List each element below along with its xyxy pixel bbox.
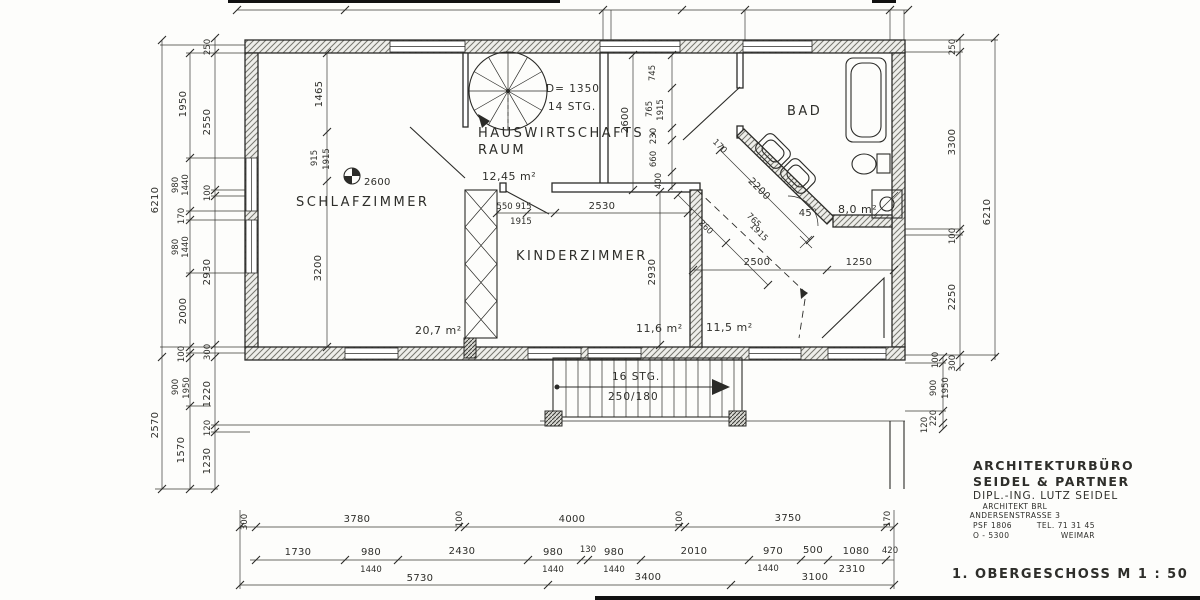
- main-staircase: [540, 358, 905, 489]
- dim-label: 1950: [941, 377, 951, 399]
- scanned-floor-plan-page: 2600 SCHLAFZIMMER 20,7 m² HAUSWIRTSCHAFT…: [0, 0, 1200, 600]
- dim-label: 100: [177, 346, 187, 362]
- stair-direction-arrow: [712, 379, 730, 395]
- dim-label: 6210: [982, 199, 993, 226]
- dim-label: 900: [929, 380, 939, 396]
- dim-label: 2430: [449, 546, 476, 557]
- dim-label: 100: [203, 185, 213, 201]
- dim-label: 300: [240, 514, 250, 530]
- area-hwr: 12,45 m²: [482, 170, 536, 183]
- spiral-steps: 14 STG.: [548, 101, 596, 113]
- dim-label: 170: [177, 208, 187, 224]
- dim-label: 120: [203, 420, 213, 436]
- corner-triangle: [822, 278, 884, 338]
- dim-label: 1440: [181, 174, 191, 196]
- dim-label: 1465: [314, 81, 325, 108]
- area-schlafzimmer: 20,7 m²: [415, 324, 462, 337]
- dim-label: 980: [171, 239, 181, 255]
- dim-label: 3100: [802, 572, 829, 583]
- schlafzimmer-door-leaf: [410, 127, 465, 178]
- dim-label: 1440: [542, 565, 564, 575]
- main-stair-steps: 16 STG.: [612, 371, 660, 383]
- area-kinderzimmer: 11,6 m²: [636, 322, 683, 335]
- level-marker: 2600: [344, 168, 391, 188]
- dim-label: 6210: [150, 187, 161, 214]
- floor-plan-drawing: 2600 SCHLAFZIMMER 20,7 m² HAUSWIRTSCHAFT…: [0, 0, 1200, 600]
- dim-label: 1220: [202, 381, 213, 408]
- dim-label: 100: [931, 352, 941, 368]
- dim-label: 4000: [559, 514, 586, 525]
- dim-label: 1730: [285, 547, 312, 558]
- dim-label: 100: [948, 228, 958, 244]
- dim-label: 2250: [947, 284, 958, 311]
- dim-chain-bottom: 300 3780 100 4000 100 3750 170 1730 980 …: [236, 510, 898, 589]
- room-label-schlafzimmer: SCHLAFZIMMER: [296, 195, 429, 210]
- dim-label: 2930: [202, 259, 213, 286]
- chimney-block: [464, 190, 497, 358]
- dim-label: 3400: [635, 572, 662, 583]
- office-street: ANDERSENSTRASSE 3: [970, 511, 1061, 520]
- dim-label: 2600: [620, 107, 631, 134]
- office-pobox: PSF 1806: [973, 521, 1012, 530]
- dim-label: 3780: [344, 514, 371, 525]
- dim-label: 765: [645, 101, 655, 117]
- dim-label: 2550: [202, 109, 213, 136]
- dim-label: 1570: [176, 437, 187, 464]
- office-city: WEIMAR: [1061, 531, 1095, 540]
- top-extension-lines: [233, 6, 912, 40]
- dim-label: 100: [455, 511, 465, 527]
- dim-label: 970: [763, 546, 783, 557]
- bathroom-fixtures: [753, 58, 902, 218]
- dim-label: 3750: [775, 513, 802, 524]
- dim-label: 2010: [681, 546, 708, 557]
- office-postcode: O - 5300: [973, 531, 1009, 540]
- dim-label: 1950: [182, 377, 192, 399]
- dim-label: 5730: [407, 573, 434, 584]
- dim-label: 3200: [313, 255, 324, 282]
- dim-label: 980: [543, 547, 563, 558]
- drawing-title: 1. OBERGESCHOSS M 1 : 50: [952, 567, 1188, 582]
- dim-chain-left: 6210 2570 1950 980 1440 170 980 1440 200…: [150, 34, 219, 493]
- area-bad: 8,0 m²: [838, 203, 877, 216]
- angle-label: 45°: [799, 208, 818, 219]
- dim-label: 1440: [181, 236, 191, 258]
- office-principal: DIPL.-ING. LUTZ SEIDEL: [973, 490, 1118, 502]
- spiral-staircase: [469, 52, 547, 131]
- window-openings-top: [390, 41, 812, 52]
- dim-label: 400: [654, 173, 664, 189]
- level-value: 2600: [364, 177, 391, 188]
- dim-label: 1950: [178, 91, 189, 118]
- dim-label: 230: [649, 128, 659, 144]
- dim-label: 1250: [846, 257, 873, 268]
- dim-label: 170: [883, 511, 893, 527]
- office-name-2: SEIDEL & PARTNER: [973, 474, 1130, 489]
- dim-label: 3300: [947, 129, 958, 156]
- area-flur: 11,5 m²: [706, 321, 753, 334]
- dim-label: 100: [675, 511, 685, 527]
- dim-label: 120: [920, 417, 930, 433]
- office-phone: TEL. 71 31 45: [1036, 521, 1095, 530]
- dim-label: 170: [710, 137, 729, 156]
- cross-mark: [800, 236, 812, 248]
- room-label-hwr-2: RAUM: [478, 143, 526, 158]
- title-block: ARCHITEKTURBÜRO SEIDEL & PARTNER DIPL.-I…: [952, 458, 1188, 582]
- scan-artifacts: [228, 0, 1200, 600]
- dim-label: 2200: [745, 176, 772, 203]
- dim-label: 980: [171, 177, 181, 193]
- dim-label: 2000: [178, 298, 189, 325]
- dim-label: 1915: [510, 217, 532, 227]
- dim-label: 130: [580, 545, 596, 555]
- dim-label: 250: [203, 39, 213, 55]
- dim-label: 900: [171, 379, 181, 395]
- dim-chain-right: 250 3300 100 2250 300 6210 100 900 1950 …: [920, 34, 999, 433]
- dim-label: 420: [882, 546, 898, 556]
- dim-label: 2500: [744, 257, 771, 268]
- toilet: [852, 154, 876, 174]
- spiral-diameter: D= 1350: [546, 83, 600, 95]
- room-label-bad: BAD: [787, 104, 822, 119]
- dim-label: 1440: [603, 565, 625, 575]
- dim-label: 1915: [322, 148, 332, 170]
- dim-label: 550 915: [496, 202, 531, 212]
- dim-label: 2570: [150, 412, 161, 439]
- dim-label: 1915: [656, 99, 666, 121]
- dim-label: 1440: [360, 565, 382, 575]
- main-stair-tread: 250/180: [608, 391, 659, 403]
- dim-label: 745: [648, 65, 658, 81]
- dim-label: 300: [203, 344, 213, 360]
- dim-label: 1080: [843, 546, 870, 557]
- dim-label: 980: [361, 547, 381, 558]
- office-name-1: ARCHITEKTURBÜRO: [973, 458, 1134, 473]
- dim-label: 2530: [589, 201, 616, 212]
- dim-label: 220: [929, 410, 939, 426]
- dim-label: 500: [803, 545, 823, 556]
- dim-label: 980: [604, 547, 624, 558]
- dim-label: 2930: [647, 259, 658, 286]
- dim-label: 300: [948, 355, 958, 371]
- office-role: ARCHITEKT BRL: [983, 502, 1048, 511]
- bad-door-leaf: [683, 87, 740, 140]
- dim-label: 250: [948, 39, 958, 55]
- dim-label: 915: [310, 150, 320, 166]
- dim-label: 660: [649, 151, 659, 167]
- dim-label: 2310: [839, 564, 866, 575]
- dim-label: 1230: [202, 448, 213, 475]
- dim-label: 1440: [757, 564, 779, 574]
- room-label-kinderzimmer: KINDERZIMMER: [516, 249, 648, 264]
